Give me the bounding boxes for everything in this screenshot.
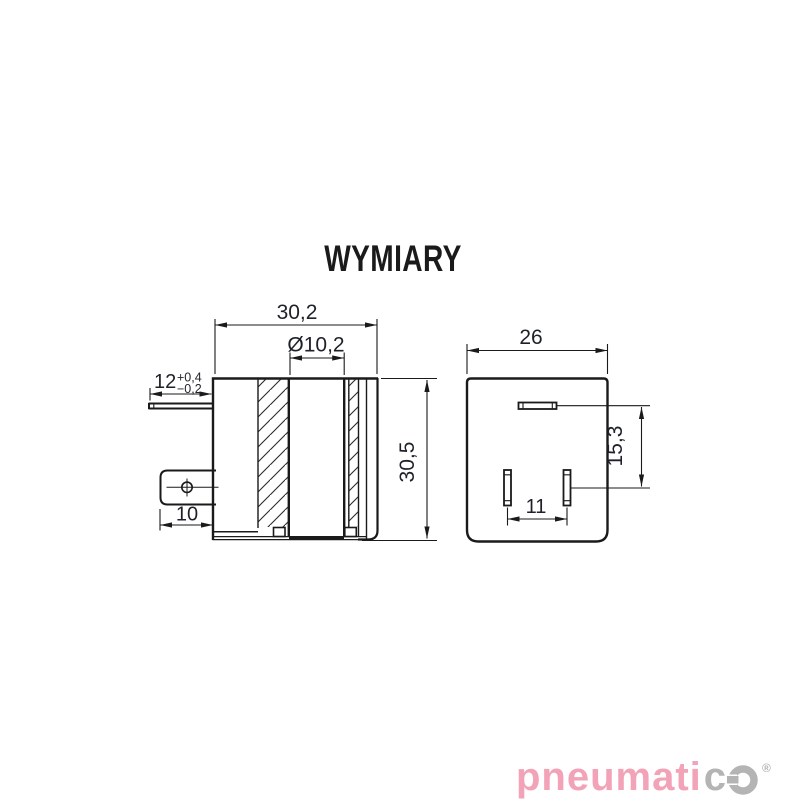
pin-slot-right-ticks <box>564 475 570 501</box>
coil-right-edge-rounded <box>358 378 378 540</box>
dimension-drawing: 30,2 Ø10,2 12 +0,4 −0,2 10 <box>0 0 800 800</box>
logo-text-gray: c <box>704 759 726 795</box>
pneumatico-logo: pneumati c ® <box>516 759 771 800</box>
dim-12-label: 12 <box>154 371 176 393</box>
hatch-band-left <box>259 379 289 527</box>
coil-tab-notch-right <box>345 528 357 537</box>
right-view-connector-face: 26 15,3 11 <box>467 326 650 542</box>
hatch-band-right <box>349 379 359 527</box>
registered-trademark: ® <box>762 761 771 775</box>
pin-slot-top-ticks <box>523 403 552 409</box>
dim-26-label: 26 <box>519 326 542 349</box>
dim-30-2-label: 30,2 <box>277 301 318 324</box>
dim-12-tol-minus: −0,2 <box>177 382 202 396</box>
pin-slot-left-ticks <box>504 475 510 501</box>
terminal-blade <box>149 403 213 409</box>
dim-bore-label: Ø10,2 <box>287 334 344 357</box>
technical-drawing-page: WYMIARY <box>0 0 800 800</box>
dim-11-label: 11 <box>526 496 547 518</box>
lug-hole-centerlines <box>167 479 219 497</box>
dim-15-3-label: 15,3 <box>604 426 627 467</box>
pin-slot-top <box>519 403 557 410</box>
logo-coupling-o-icon <box>727 765 761 800</box>
dim-10-label: 10 <box>176 504 198 526</box>
logo-text-pink: pneumati <box>516 759 702 795</box>
dim-30-5-label: 30,5 <box>396 442 419 483</box>
coil-bore-walls <box>289 378 344 537</box>
left-view-coil-section: 30,2 Ø10,2 12 +0,4 −0,2 10 <box>149 301 437 541</box>
coil-tab-notch-left <box>274 528 286 537</box>
